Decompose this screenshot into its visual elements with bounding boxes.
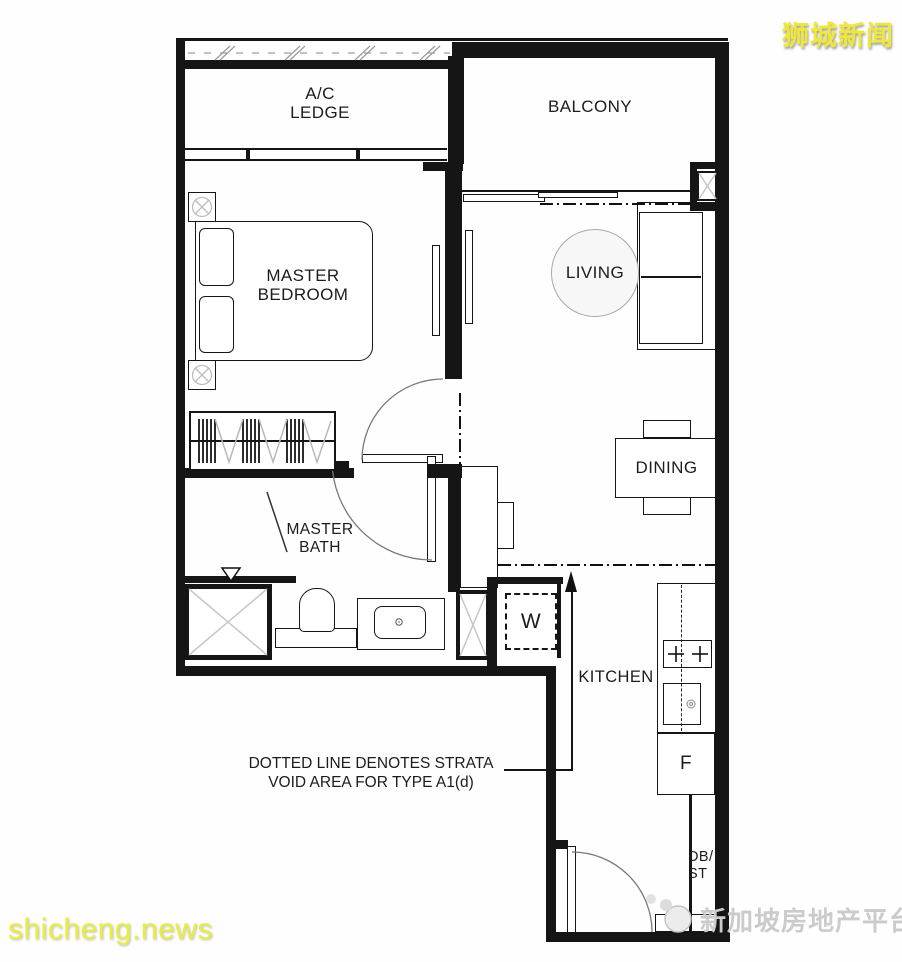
room-label-master-bath: MASTER BATH <box>268 521 372 556</box>
dining-chair <box>643 420 691 438</box>
strata-void-line <box>459 393 461 466</box>
watermark-bottom-right: 新加坡房地产平台 <box>700 901 902 938</box>
wall <box>557 584 561 658</box>
fridge: F <box>657 733 715 795</box>
room-label-master-bedroom: MASTER BEDROOM <box>228 266 378 305</box>
room-label-line: BEDROOM <box>228 285 378 304</box>
cabinet <box>497 502 514 549</box>
hanger-bars-icon <box>199 419 303 463</box>
room-label-ac-ledge: A/C LEDGE <box>255 84 385 123</box>
sliding-door-panel <box>538 192 618 198</box>
annotation-line: DOTTED LINE DENOTES STRATA <box>238 755 504 774</box>
washer: W <box>505 593 557 650</box>
tv-panel <box>465 230 473 324</box>
floor-plan: LIVING DINING W F <box>0 0 902 962</box>
sofa-seat <box>639 212 703 344</box>
wall <box>546 666 556 942</box>
wall <box>452 42 728 58</box>
kitchen-sink <box>663 683 701 725</box>
sofa-cushion-divider <box>641 276 701 278</box>
sliding-door-track <box>462 190 694 192</box>
fixture-label-line: ST <box>688 866 722 883</box>
wall <box>423 162 463 171</box>
wall <box>715 42 729 942</box>
sliding-door-panel <box>463 194 545 202</box>
leader-line <box>504 769 572 771</box>
window-mullion <box>246 148 250 161</box>
wash-basin <box>374 606 426 639</box>
cabinet <box>460 466 498 588</box>
wall <box>333 461 349 470</box>
strata-void-line <box>540 203 692 205</box>
ac-ledge-hatch <box>188 46 450 60</box>
dining-chair <box>643 497 691 515</box>
nightstand <box>188 360 216 390</box>
shaft-box <box>184 584 272 660</box>
wall <box>176 576 296 583</box>
watermark-bottom-left: shicheng.news <box>8 913 213 947</box>
room-label-line: LEDGE <box>255 103 385 122</box>
wall <box>176 38 728 41</box>
strata-void-line <box>498 564 716 566</box>
wall <box>176 666 556 676</box>
room-label-dining: DINING <box>636 458 698 477</box>
service-shaft <box>456 590 490 660</box>
wall <box>487 577 497 669</box>
window-mullion <box>356 148 360 161</box>
watermark-top-right: 狮城新闻 <box>782 14 894 53</box>
strata-void-annotation: DOTTED LINE DENOTES STRATA VOID AREA FOR… <box>238 755 504 793</box>
dining-table: DINING <box>615 438 718 498</box>
fridge-label: F <box>680 753 692 775</box>
annotation-line: VOID AREA FOR TYPE A1(d) <box>238 774 504 793</box>
wall <box>487 577 563 584</box>
washer-label: W <box>521 610 541 634</box>
overhead-cabinet-line <box>681 585 682 731</box>
fixture-label-db-store: DB/ ST <box>688 849 722 882</box>
wall <box>554 840 568 849</box>
wall <box>448 468 460 592</box>
wall <box>445 162 462 379</box>
wall <box>176 468 354 478</box>
wardrobe <box>190 412 335 470</box>
tv-panel <box>432 245 440 336</box>
wall <box>690 202 722 211</box>
fixture-label-line: DB/ <box>688 849 722 866</box>
room-label-line: MASTER <box>268 521 372 539</box>
hob <box>663 640 712 668</box>
room-label-balcony: BALCONY <box>515 97 665 116</box>
window <box>184 148 447 161</box>
entry-door-leaf <box>567 846 576 934</box>
room-label-kitchen: KITCHEN <box>568 668 664 687</box>
wall <box>448 56 464 164</box>
toilet <box>299 588 335 632</box>
room-label-line: A/C <box>255 84 385 103</box>
room-label-line: BATH <box>268 539 372 557</box>
nightstand <box>188 192 216 222</box>
living-area-marker: LIVING <box>551 229 639 317</box>
room-label-living: LIVING <box>566 263 624 282</box>
hanger-zigzag-icon <box>215 419 331 462</box>
room-label-line: MASTER <box>228 266 378 285</box>
wall <box>184 60 452 69</box>
